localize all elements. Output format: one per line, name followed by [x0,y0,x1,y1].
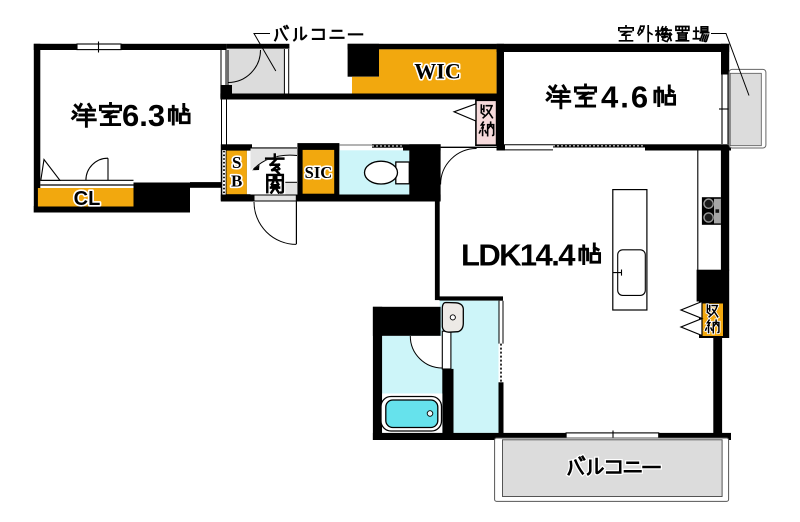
svg-text:SIC: SIC [305,163,333,182]
svg-text:6.3: 6.3 [122,98,165,133]
svg-text:S: S [232,153,241,172]
svg-text:4.6: 4.6 [601,80,650,115]
svg-text:B: B [231,172,242,191]
svg-text:LDK14.4: LDK14.4 [461,238,576,273]
svg-text:CL: CL [74,188,101,210]
svg-text:WIC: WIC [414,59,460,84]
